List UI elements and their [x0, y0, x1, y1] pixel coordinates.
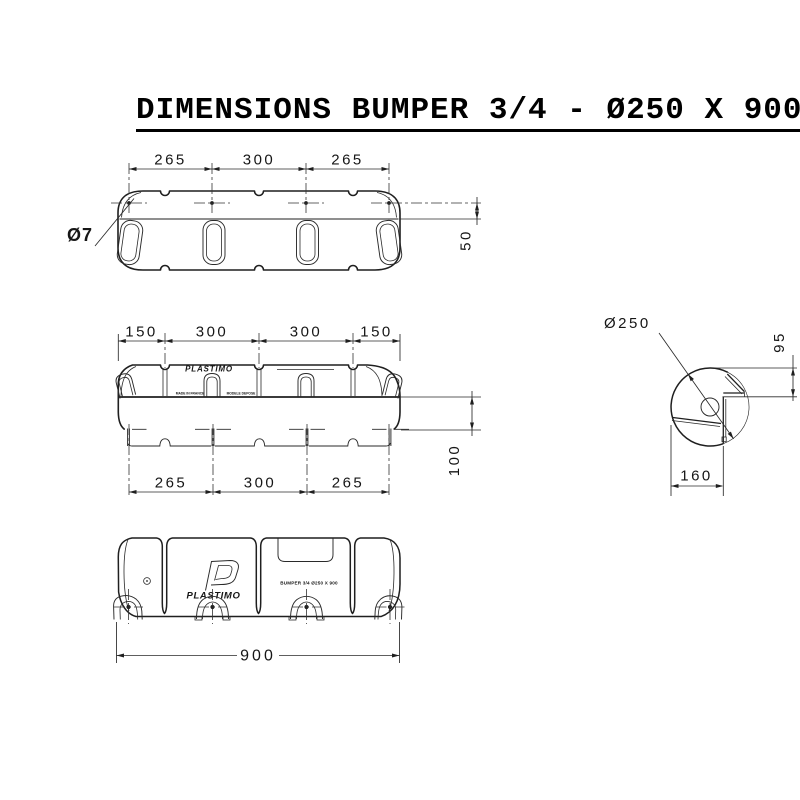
embossed-brand-text: PLASTIMO [185, 365, 233, 374]
dim-label: 265 [155, 475, 188, 492]
dim-label-50: 50 [458, 229, 475, 251]
front-view: PLASTIMO BUMPER 3/4 Ø250 X 900 [114, 538, 405, 665]
section-center-hole [701, 398, 719, 416]
dim-label: 265 [332, 475, 365, 492]
dim-label: 265 [331, 152, 364, 169]
dim-label: 300 [243, 152, 276, 169]
product-marking-text: BUMPER 3/4 Ø250 X 900 [280, 581, 338, 586]
side-slot-mid-left [204, 374, 220, 397]
dim-label: 300 [290, 324, 323, 341]
plastimo-logo [206, 561, 239, 591]
diameter-label: Ø250 [604, 315, 651, 332]
dim-label-900: 900 [240, 648, 276, 665]
top-view-outline [118, 191, 400, 270]
dim-label: 265 [154, 152, 187, 169]
dim-label: 150 [125, 324, 158, 341]
dim-label: 150 [360, 324, 393, 341]
front-view-outline [118, 538, 400, 617]
drawing-canvas: DIMENSIONS BUMPER 3/4 - Ø250 X 900 [0, 0, 800, 800]
top-view: 265 300 265 Ø7 50 [67, 152, 481, 271]
technical-drawing: 265 300 265 Ø7 50 [0, 0, 800, 800]
diameter-leader-line [659, 333, 734, 439]
dim-label-95: 95 [771, 331, 788, 353]
cross-section-view: Ø250 95 160 [604, 315, 797, 496]
dim-label: 300 [244, 475, 277, 492]
top-slot-mid-left [203, 221, 225, 265]
dim-label-100: 100 [446, 444, 463, 477]
embossed-mark-text: MODELE DEPOSE [227, 392, 257, 396]
hole-diameter-label: Ø7 [67, 225, 93, 245]
embossed-made-in-text: MADE IN FRANCE [176, 392, 205, 396]
side-slot-mid-right [298, 374, 314, 397]
hole-leader-line [95, 199, 134, 247]
side-view-skirt [132, 439, 387, 446]
dim-label: 300 [196, 324, 229, 341]
foot-left [114, 596, 143, 620]
top-slot-mid-right [297, 221, 319, 265]
dim-label-160: 160 [680, 468, 713, 485]
label-recess [278, 539, 333, 562]
side-view: PLASTIMO MADE IN FRANCE MODELE DEPOSE 15… [115, 324, 481, 498]
